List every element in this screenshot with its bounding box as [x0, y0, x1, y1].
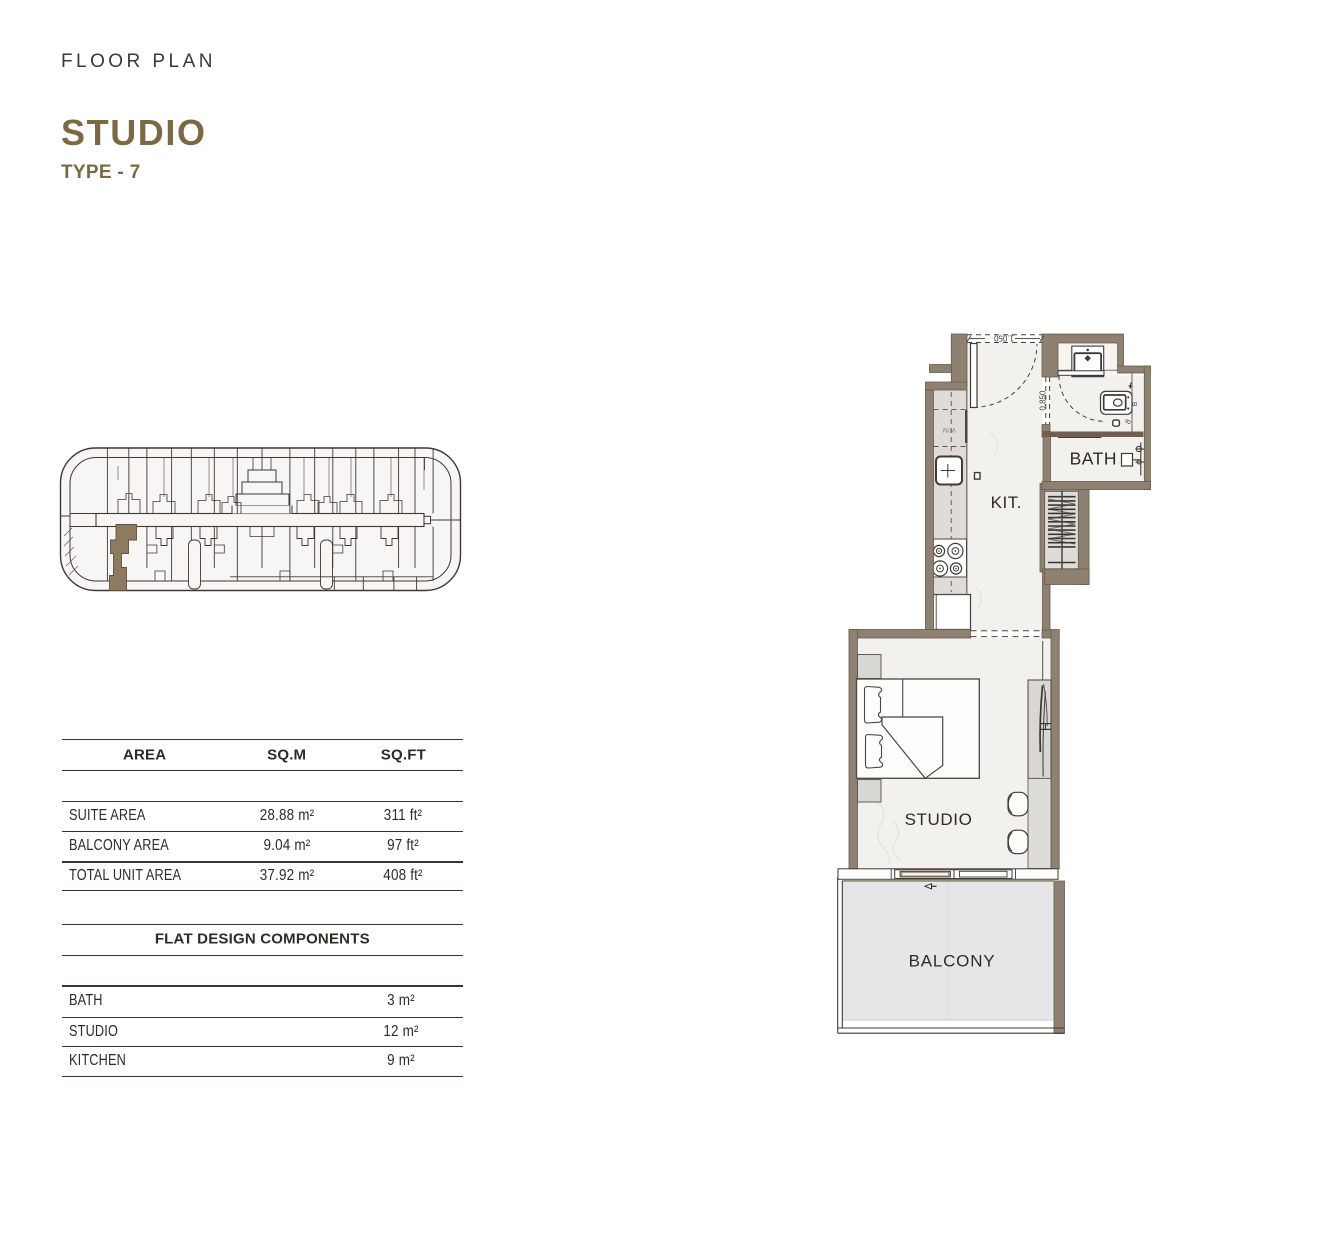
svg-text:1.050: 1.050	[993, 334, 1014, 343]
svg-text:B: B	[1132, 402, 1139, 406]
svg-text:STUDIO: STUDIO	[905, 810, 973, 829]
svg-text:BALCONY: BALCONY	[909, 952, 996, 971]
svg-text:W/M: W/M	[942, 426, 955, 433]
svg-text:BATH: BATH	[1070, 449, 1117, 469]
svg-text:0.850: 0.850	[1038, 390, 1047, 411]
svg-text:KIT.: KIT.	[991, 493, 1022, 512]
